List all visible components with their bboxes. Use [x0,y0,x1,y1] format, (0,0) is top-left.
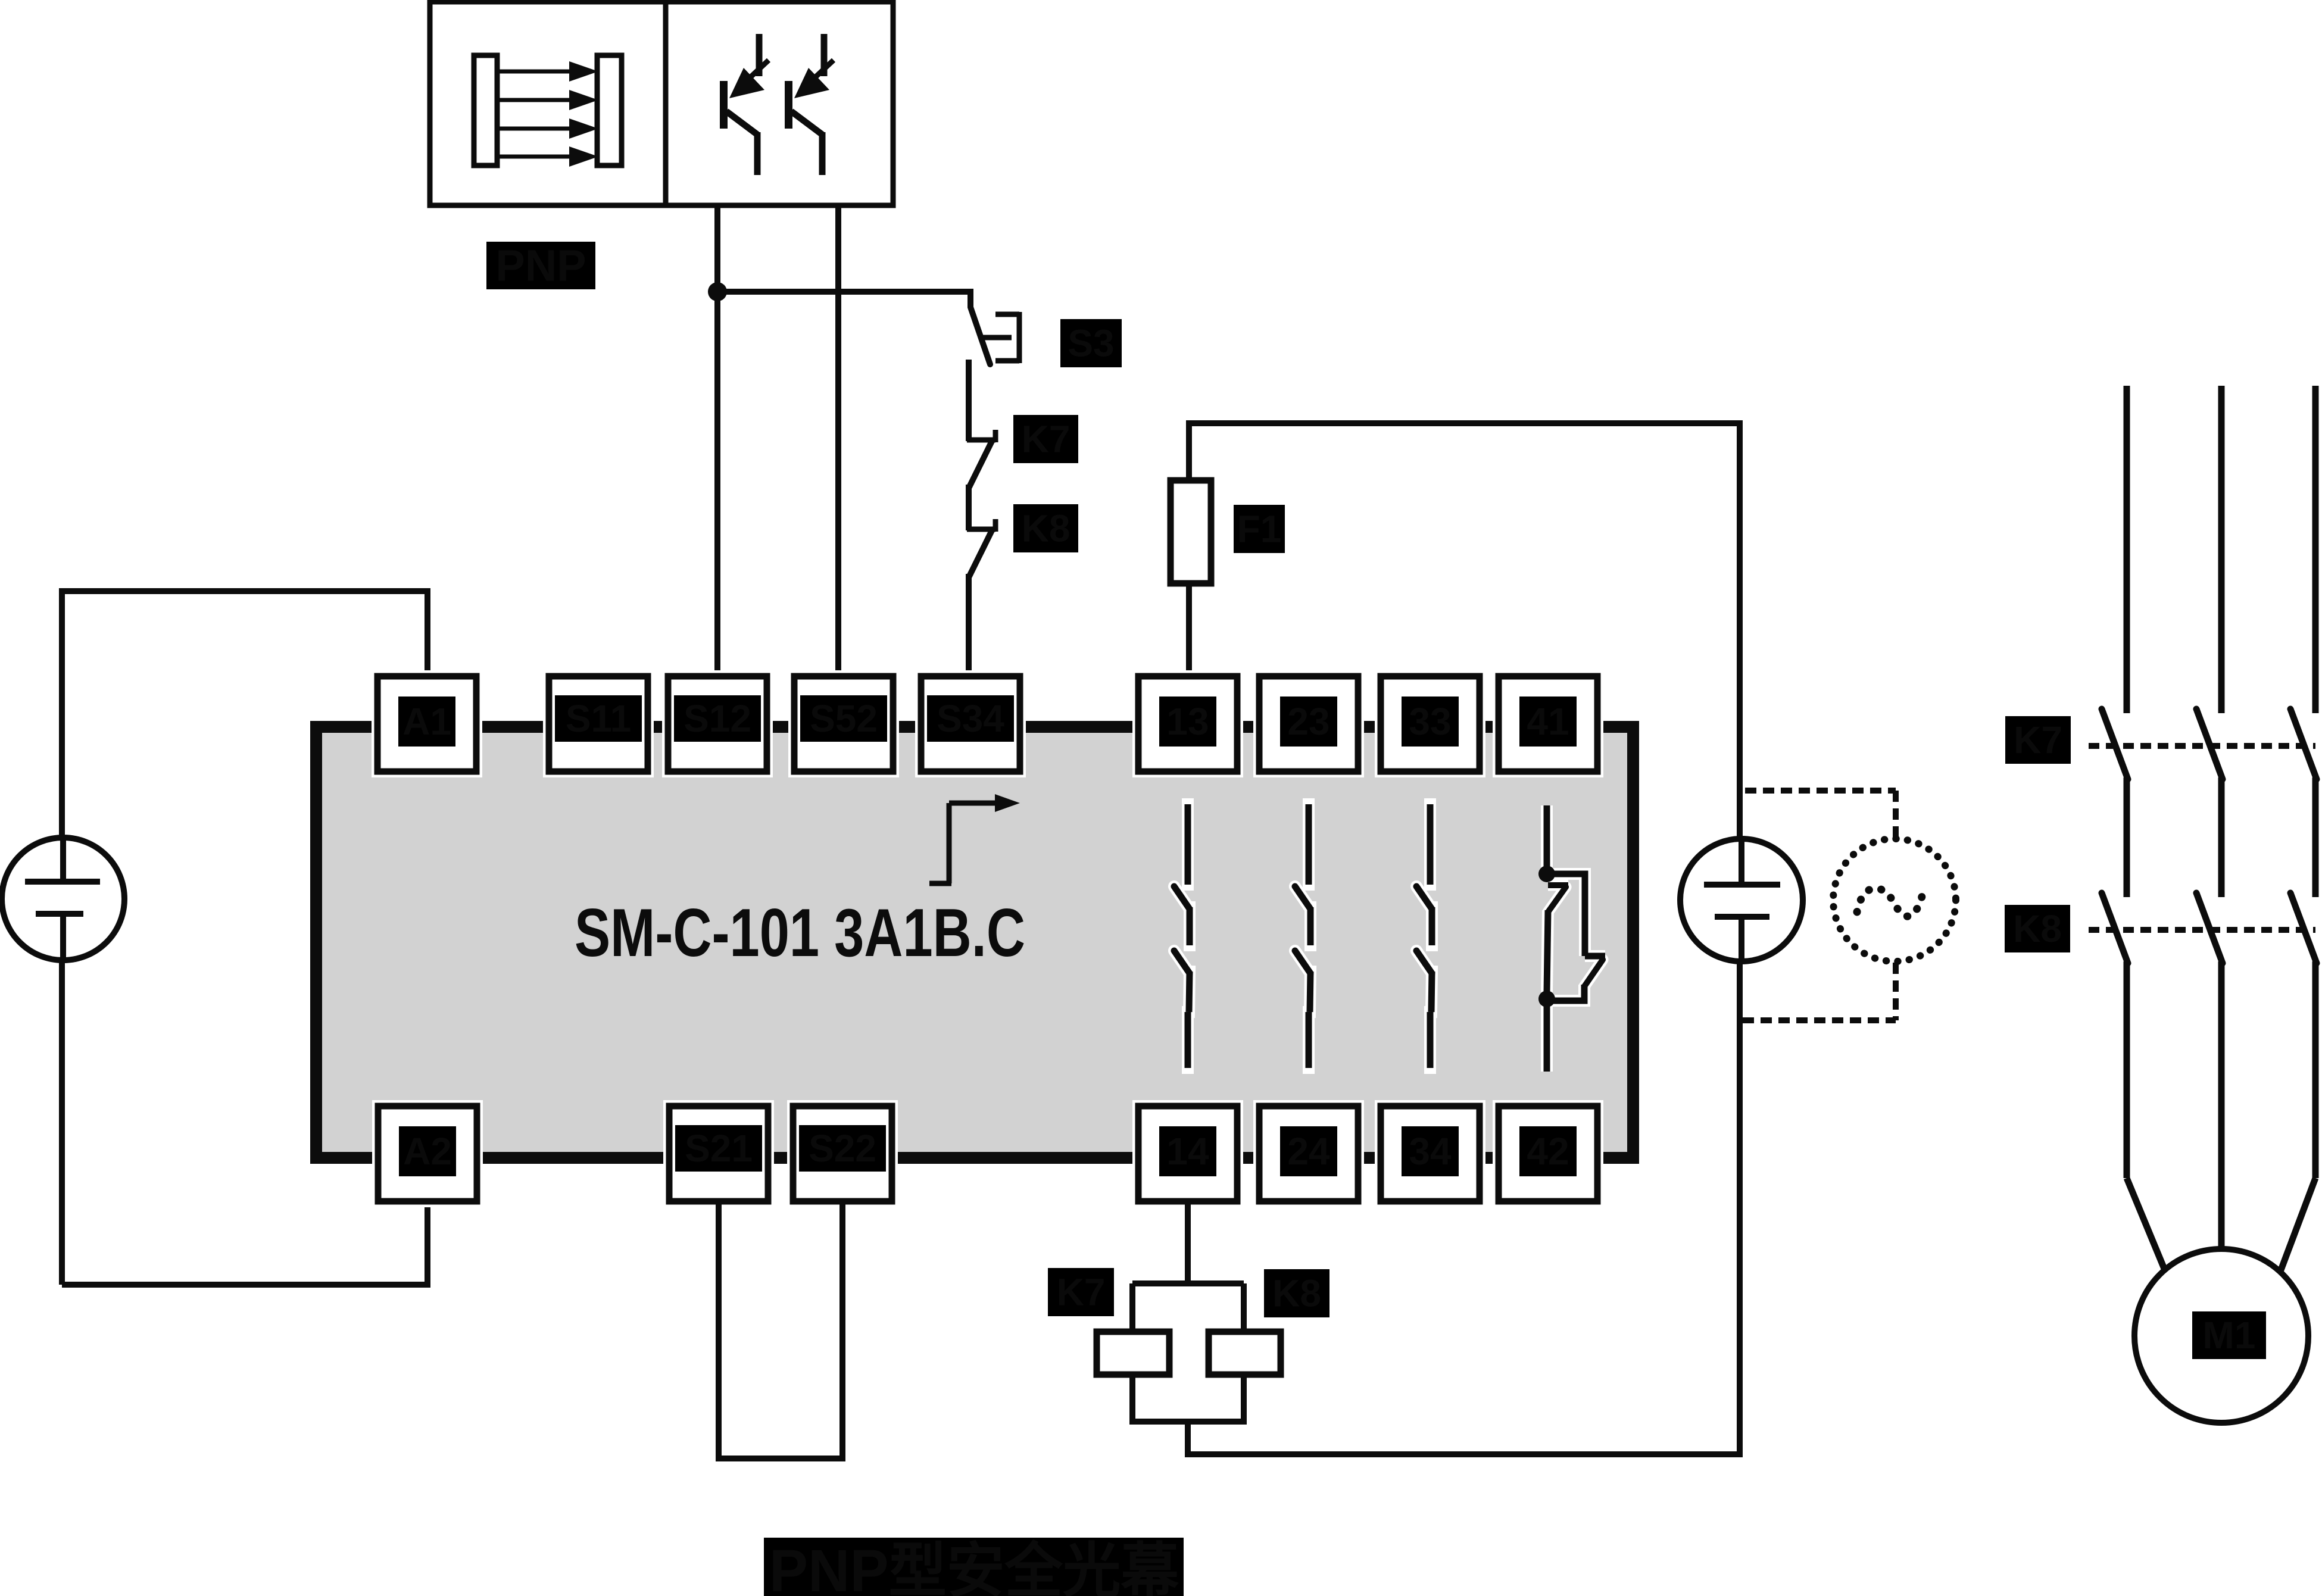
svg-text:S11: S11 [566,697,631,740]
svg-text:SM-C-101 3A1B.C: SM-C-101 3A1B.C [575,895,1025,971]
svg-text:K7: K7 [1057,1271,1106,1314]
svg-text:23: 23 [1287,700,1329,743]
svg-text:A1: A1 [402,700,451,743]
svg-text:S12: S12 [684,697,751,740]
svg-text:K8: K8 [1022,507,1071,550]
svg-text:41: 41 [1527,700,1569,743]
svg-text:K8: K8 [2013,907,2062,950]
svg-text:34: 34 [1409,1130,1452,1173]
svg-text:A2: A2 [403,1130,452,1173]
svg-text:33: 33 [1409,700,1451,743]
svg-text:13: 13 [1166,700,1209,743]
svg-text:PNP型安全光幕: PNP型安全光幕 [769,1538,1179,1596]
svg-text:K8: K8 [1272,1272,1321,1315]
svg-text:S52: S52 [810,697,878,740]
svg-text:14: 14 [1166,1130,1209,1173]
svg-text:S34: S34 [937,697,1004,740]
svg-text:S3: S3 [1068,322,1114,365]
svg-text:24: 24 [1287,1130,1330,1173]
svg-text:F1: F1 [1237,508,1282,551]
svg-text:K7: K7 [2014,719,2062,761]
svg-text:42: 42 [1527,1130,1569,1173]
svg-text:S21: S21 [685,1127,753,1170]
svg-text:K7: K7 [1022,418,1071,461]
svg-text:S22: S22 [809,1127,876,1170]
svg-text:M1: M1 [2203,1314,2256,1357]
svg-text:PNP: PNP [495,241,586,291]
